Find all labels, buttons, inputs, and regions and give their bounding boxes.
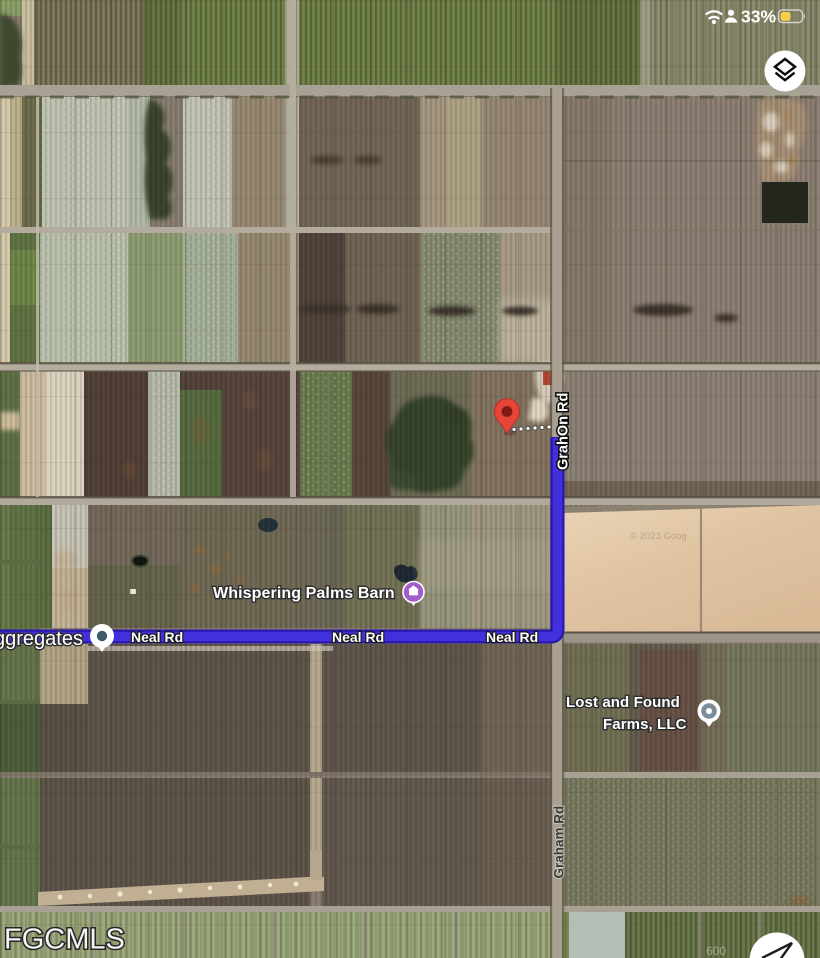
- svg-text:ggregates: ggregates: [0, 628, 83, 650]
- svg-text:© 2023 Goog: © 2023 Goog: [630, 531, 687, 542]
- svg-text:FGCMLS: FGCMLS: [4, 924, 125, 956]
- svg-text:GrahOn Rd: GrahOn Rd: [556, 393, 572, 470]
- svg-text:Graham Rd: Graham Rd: [552, 806, 567, 879]
- svg-text:Neal Rd: Neal Rd: [486, 629, 538, 645]
- svg-text:33%: 33%: [741, 7, 776, 27]
- svg-text:Whispering Palms Barn: Whispering Palms Barn: [213, 585, 395, 602]
- svg-text:600: 600: [706, 944, 726, 958]
- svg-text:Neal Rd: Neal Rd: [131, 629, 183, 645]
- svg-text:Farms, LLC: Farms, LLC: [603, 716, 687, 733]
- svg-text:Lost and Found: Lost and Found: [566, 694, 680, 711]
- svg-text:Neal Rd: Neal Rd: [332, 629, 384, 645]
